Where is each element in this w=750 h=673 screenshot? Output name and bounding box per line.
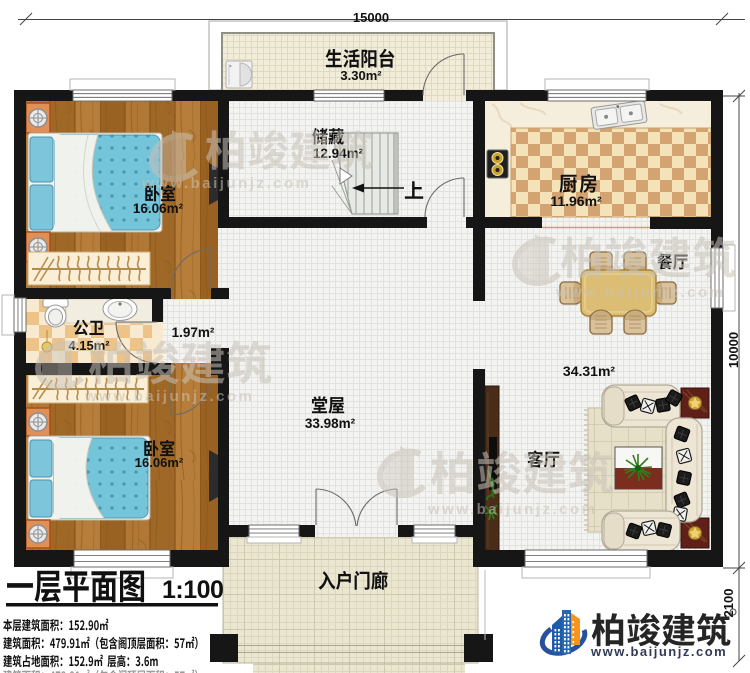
svg-text:15000: 15000 [353, 10, 389, 25]
svg-text:10000: 10000 [726, 332, 741, 368]
svg-text:34.31m²: 34.31m² [563, 363, 615, 379]
svg-text:2100: 2100 [721, 589, 736, 618]
svg-text:3.30m²: 3.30m² [340, 68, 382, 83]
svg-text:www.baijunjz.com: www.baijunjz.com [590, 644, 727, 659]
svg-text:16.06m²: 16.06m² [135, 455, 184, 470]
svg-text:www.baijunjz.com: www.baijunjz.com [427, 501, 597, 518]
svg-text:www.baijunjz.com: www.baijunjz.com [141, 175, 311, 192]
svg-text:www.baijunjz.com: www.baijunjz.com [555, 284, 725, 301]
svg-text:11.96m²: 11.96m² [550, 193, 602, 209]
svg-text:1:100: 1:100 [162, 576, 223, 604]
svg-text:1.97m²: 1.97m² [172, 325, 215, 340]
svg-text:33.98m²: 33.98m² [305, 416, 356, 431]
svg-text:16.06m²: 16.06m² [133, 201, 184, 216]
svg-text:www.baijunjz.com: www.baijunjz.com [84, 388, 254, 405]
